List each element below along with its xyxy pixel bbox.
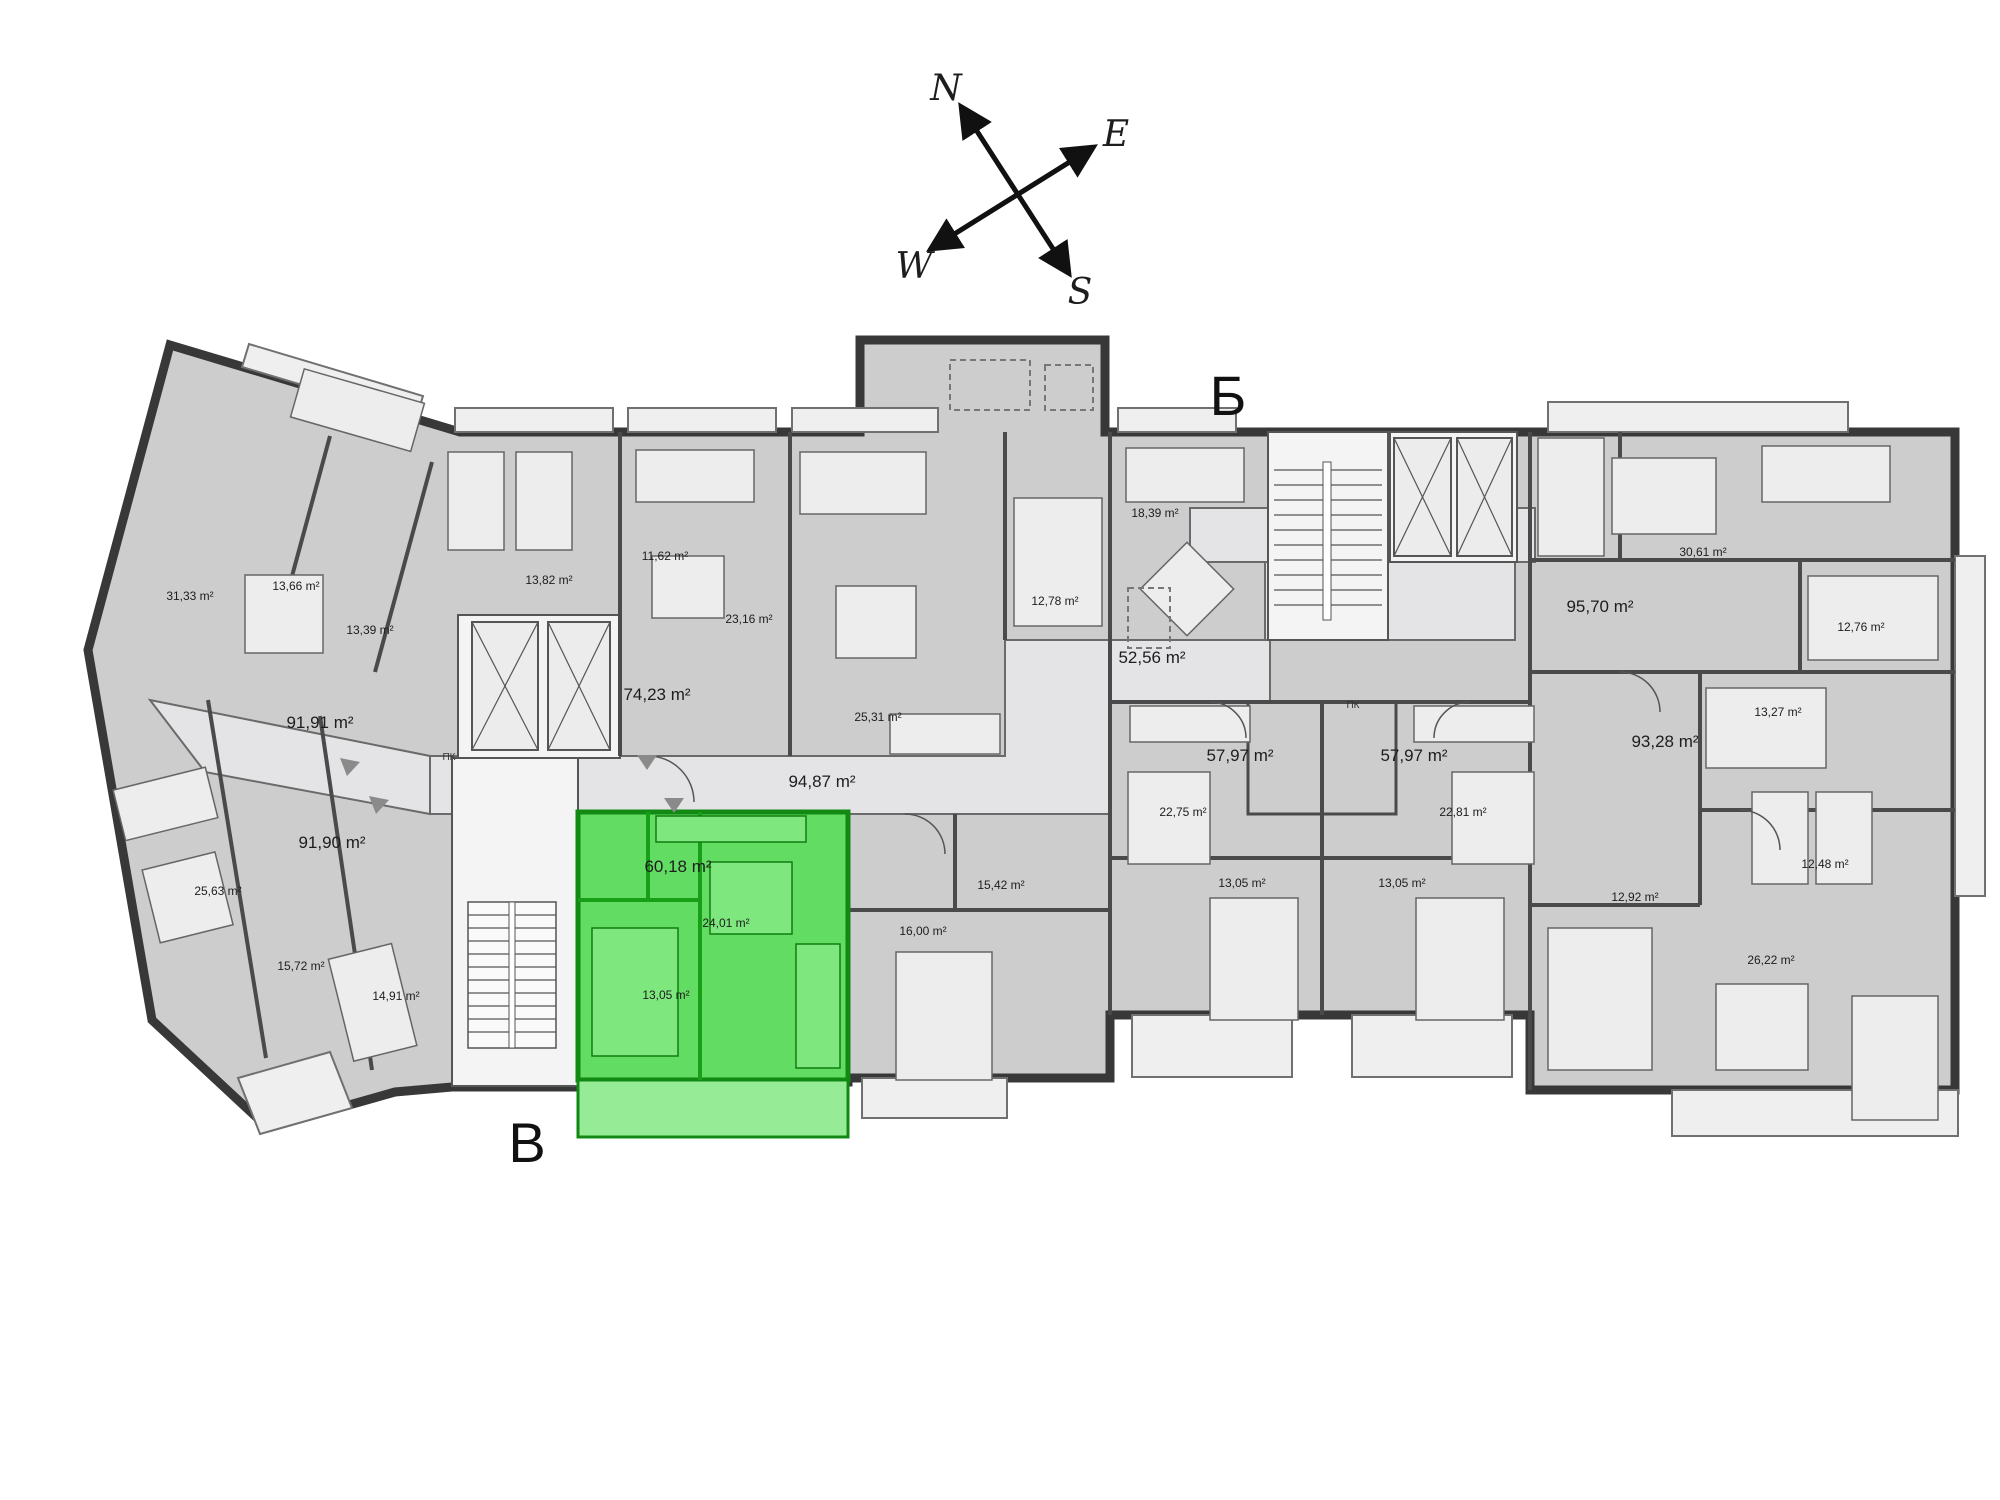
highlighted-unit-area-label: 24,01 m² (702, 916, 749, 930)
highlighted-unit[interactable] (578, 812, 848, 1137)
compass: N E W S (895, 68, 1129, 313)
stairwell-entrance-b (1268, 432, 1388, 640)
compass-label-w: W (895, 246, 935, 287)
room-area-label: 74,23 m² (623, 685, 690, 704)
room-area-label: 31,33 m² (166, 589, 213, 603)
room-area-label: 91,91 m² (286, 713, 353, 732)
room-area-label: 13,66 m² (272, 579, 319, 593)
room-area-label: 13,05 m² (1218, 876, 1265, 890)
room-area-label: 91,90 m² (298, 833, 365, 852)
room-area-label: 23,16 m² (725, 612, 772, 626)
room-area-label: 95,70 m² (1566, 597, 1633, 616)
compass-label-n: N (929, 68, 963, 109)
highlighted-unit-area-label: 13,05 m² (642, 988, 689, 1002)
compass-label-s: S (1068, 272, 1093, 313)
floor-plan-canvas: N E W S Б В 31,33 m²13,66 m²13,39 m²13,8… (0, 0, 2000, 1500)
compass-label-e: E (1102, 114, 1129, 155)
room-area-label: 57,97 m² (1206, 746, 1273, 765)
room-area-label: 13,05 m² (1378, 876, 1425, 890)
room-area-label: 14,91 m² (372, 989, 419, 1003)
room-area-label: 13,39 m² (346, 623, 393, 637)
utility-label: ПК (442, 752, 455, 763)
section-label-b: Б (1210, 364, 1247, 427)
room-area-label: 18,39 m² (1131, 506, 1178, 520)
room-area-label: 30,61 m² (1679, 545, 1726, 559)
room-area-label: 93,28 m² (1631, 732, 1698, 751)
room-area-label: 22,75 m² (1159, 805, 1206, 819)
room-area-label: 12,48 m² (1801, 857, 1848, 871)
utility-label: ПК (1346, 700, 1359, 711)
room-area-label: 16,00 m² (899, 924, 946, 938)
room-area-label: 57,97 m² (1380, 746, 1447, 765)
room-area-label: 13,27 m² (1754, 705, 1801, 719)
room-area-label: 13,82 m² (525, 573, 572, 587)
room-area-label: 15,72 m² (277, 959, 324, 973)
compass-we-axis (932, 148, 1092, 248)
room-area-label: 26,22 m² (1747, 953, 1794, 967)
elevator-core-b (1390, 432, 1517, 562)
compass-ns-axis (962, 108, 1068, 272)
highlighted-unit-area-label: 60,18 m² (644, 857, 711, 876)
floor-plan-svg: N E W S Б В 31,33 m²13,66 m²13,39 m²13,8… (0, 0, 2000, 1500)
elevator-core-left (458, 615, 620, 758)
room-area-label: 15,42 m² (977, 878, 1024, 892)
stairwell-entrance-v (452, 758, 578, 1086)
room-area-label: 25,31 m² (854, 710, 901, 724)
highlighted-unit-balcony (578, 1080, 848, 1137)
room-area-label: 25,63 m² (194, 884, 241, 898)
room-area-label: 94,87 m² (788, 772, 855, 791)
room-area-label: 12,92 m² (1611, 890, 1658, 904)
room-area-label: 22,81 m² (1439, 805, 1486, 819)
room-area-label: 12,78 m² (1031, 594, 1078, 608)
room-area-label: 52,56 m² (1118, 648, 1185, 667)
room-area-label: 12,76 m² (1837, 620, 1884, 634)
section-label-v: В (508, 1111, 545, 1174)
room-area-label: 11,62 m² (642, 549, 688, 563)
